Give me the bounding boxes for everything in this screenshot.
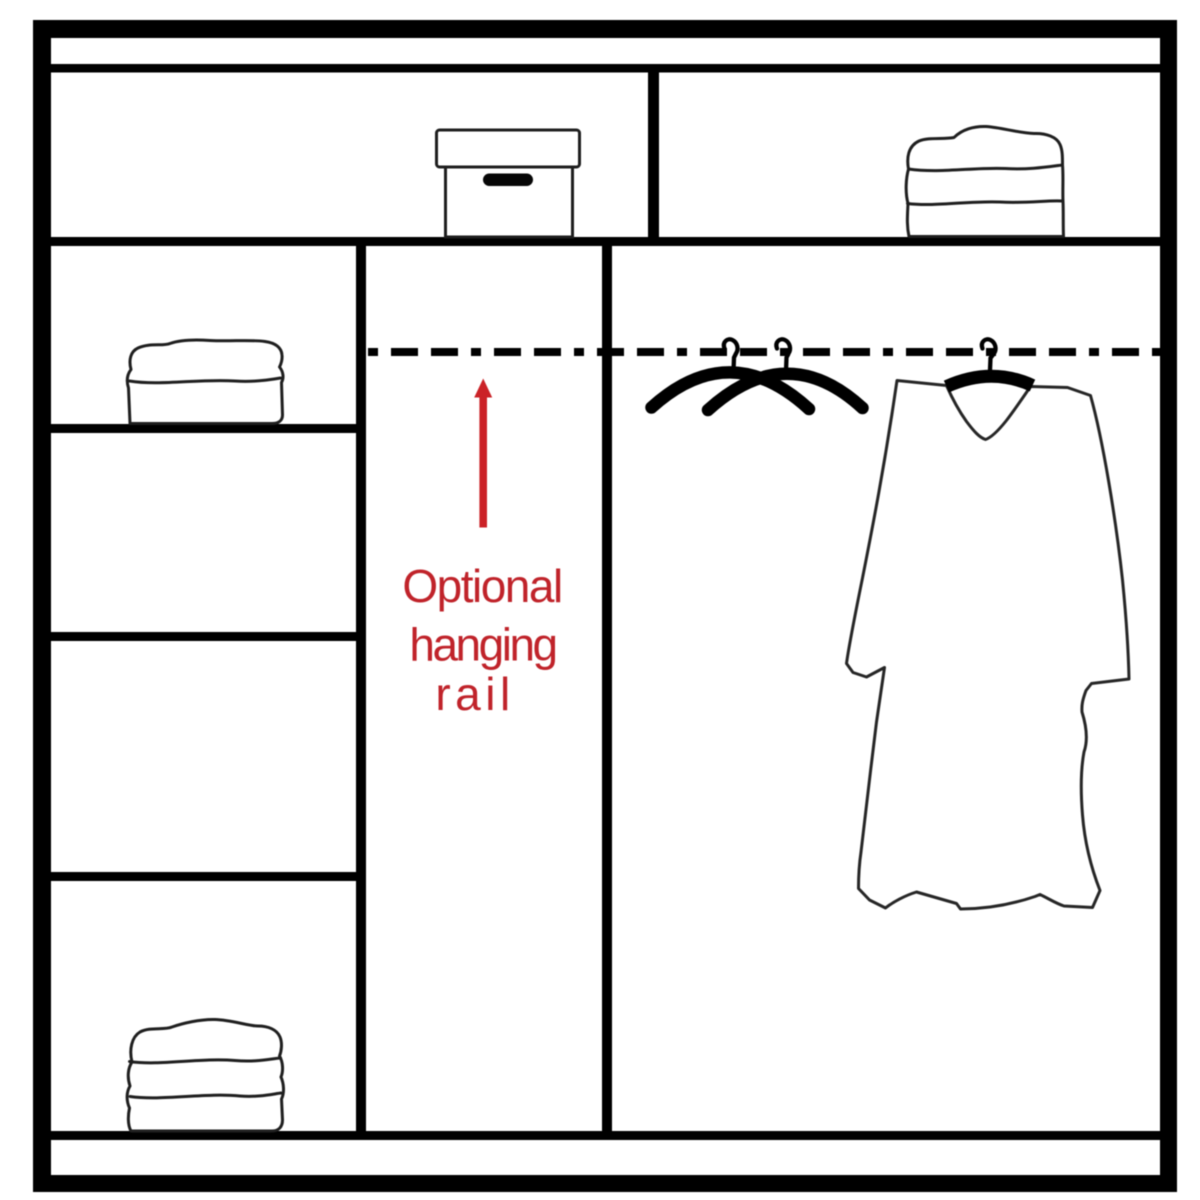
- svg-text:rail: rail: [435, 668, 514, 720]
- svg-text:Optional: Optional: [402, 560, 561, 612]
- svg-text:hanging: hanging: [409, 619, 555, 671]
